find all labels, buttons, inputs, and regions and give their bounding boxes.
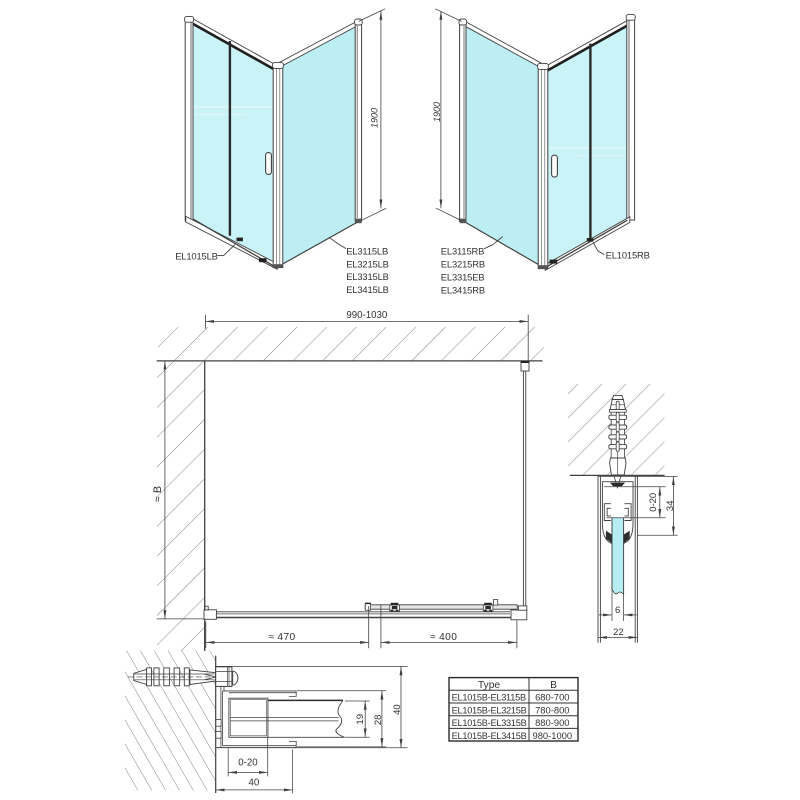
- svg-text:EL3115LB: EL3115LB: [346, 245, 388, 256]
- svg-text:≈ 470: ≈ 470: [268, 632, 295, 643]
- svg-text:EL1015RB: EL1015RB: [606, 250, 650, 261]
- svg-text:34: 34: [665, 501, 676, 512]
- svg-text:EL3415RB: EL3415RB: [441, 284, 485, 295]
- svg-text:0-20: 0-20: [648, 493, 659, 512]
- svg-text:1900: 1900: [432, 102, 442, 122]
- svg-text:Type: Type: [478, 680, 501, 691]
- svg-text:28: 28: [373, 715, 384, 726]
- svg-text:40: 40: [392, 704, 403, 715]
- svg-text:EL3215LB: EL3215LB: [346, 258, 389, 269]
- svg-text:0-20: 0-20: [238, 758, 258, 769]
- svg-text:EL3315EB: EL3315EB: [441, 271, 485, 282]
- svg-text:EL1015LB: EL1015LB: [175, 251, 218, 262]
- svg-text:EL3215RB: EL3215RB: [441, 259, 485, 270]
- svg-text:EL1015B-EL3415B: EL1015B-EL3415B: [452, 731, 527, 741]
- svg-text:22: 22: [613, 627, 624, 638]
- svg-text:6: 6: [615, 605, 620, 616]
- svg-text:40: 40: [249, 777, 260, 788]
- svg-text:19: 19: [355, 714, 366, 725]
- svg-text:1900: 1900: [369, 108, 379, 128]
- svg-text:780-800: 780-800: [535, 704, 569, 715]
- svg-text:B: B: [550, 680, 557, 691]
- svg-text:880-900: 880-900: [535, 717, 569, 728]
- svg-text:EL1015B-EL3115B: EL1015B-EL3115B: [452, 693, 526, 703]
- svg-text:EL3115RB: EL3115RB: [441, 246, 484, 257]
- svg-text:990-1030: 990-1030: [346, 310, 388, 321]
- svg-text:680-700: 680-700: [535, 692, 569, 703]
- svg-text:EL1015B-EL3315B: EL1015B-EL3315B: [452, 718, 527, 728]
- svg-text:EL3315LB: EL3315LB: [346, 271, 389, 282]
- svg-text:≈ 400: ≈ 400: [430, 632, 457, 643]
- svg-text:EL3415LB: EL3415LB: [346, 284, 389, 295]
- svg-text:EL1015B-EL3215B: EL1015B-EL3215B: [452, 705, 527, 715]
- svg-text:≈ B: ≈ B: [152, 486, 164, 502]
- svg-text:980-1000: 980-1000: [532, 730, 572, 741]
